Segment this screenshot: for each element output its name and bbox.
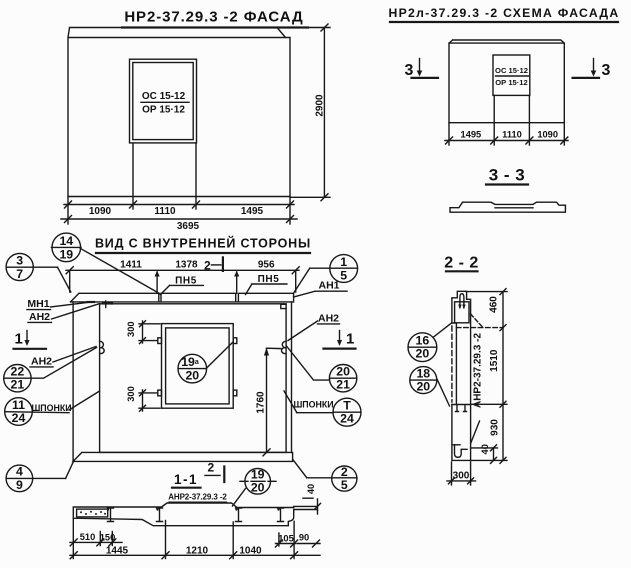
svg-text:АНР2-37.29.3 -2: АНР2-37.29.3 -2 xyxy=(473,333,484,408)
svg-text:11: 11 xyxy=(12,398,25,412)
svg-text:5: 5 xyxy=(341,478,348,492)
svg-text:20: 20 xyxy=(251,481,265,495)
svg-text:1110: 1110 xyxy=(154,206,176,217)
svg-text:1: 1 xyxy=(15,331,23,348)
svg-text:1110: 1110 xyxy=(502,130,522,140)
svg-text:2: 2 xyxy=(204,259,211,273)
svg-text:1040: 1040 xyxy=(239,545,262,556)
svg-text:3: 3 xyxy=(602,62,611,79)
svg-text:НР2-37.29.3 -2 ФАСАД: НР2-37.29.3 -2 ФАСАД xyxy=(124,9,303,26)
svg-text:1411: 1411 xyxy=(120,260,142,271)
svg-text:АН2: АН2 xyxy=(29,311,50,323)
svg-text:1210: 1210 xyxy=(186,545,209,556)
svg-text:1510: 1510 xyxy=(489,349,500,372)
svg-text:1090: 1090 xyxy=(89,206,112,217)
svg-text:ОР 15·12: ОР 15·12 xyxy=(142,105,185,116)
svg-text:ОС 15-12: ОС 15-12 xyxy=(142,91,186,102)
svg-text:АН2: АН2 xyxy=(318,313,339,325)
svg-text:460: 460 xyxy=(489,296,500,313)
svg-text:20: 20 xyxy=(185,369,199,383)
svg-text:АН1: АН1 xyxy=(318,280,339,292)
svg-text:АНР2-37.29.3 -2: АНР2-37.29.3 -2 xyxy=(168,493,227,502)
svg-text:2: 2 xyxy=(341,465,348,479)
svg-text:МН1: МН1 xyxy=(27,298,49,310)
svg-text:40: 40 xyxy=(480,444,490,454)
svg-text:510: 510 xyxy=(80,532,96,542)
svg-text:1378: 1378 xyxy=(175,260,198,271)
svg-text:АН2: АН2 xyxy=(31,356,52,368)
svg-text:24: 24 xyxy=(340,412,354,426)
svg-text:956: 956 xyxy=(258,260,275,271)
svg-text:4: 4 xyxy=(16,465,23,479)
svg-text:1: 1 xyxy=(340,255,347,269)
svg-text:1495: 1495 xyxy=(241,206,264,217)
svg-text:ВИД С ВНУТРЕННЕЙ СТОРОНЫ: ВИД С ВНУТРЕННЕЙ СТОРОНЫ xyxy=(95,236,311,251)
svg-text:14: 14 xyxy=(59,234,73,248)
svg-text:20: 20 xyxy=(416,380,430,394)
svg-text:21: 21 xyxy=(11,378,25,392)
svg-text:ШПОНКИ: ШПОНКИ xyxy=(31,403,71,413)
svg-text:20: 20 xyxy=(336,365,350,379)
svg-text:21: 21 xyxy=(336,378,350,392)
svg-text:3: 3 xyxy=(405,62,414,79)
svg-text:2900: 2900 xyxy=(315,94,326,117)
svg-text:3 - 3: 3 - 3 xyxy=(489,166,526,185)
svg-text:1: 1 xyxy=(346,331,354,348)
svg-text:20: 20 xyxy=(416,347,430,361)
svg-text:16: 16 xyxy=(416,334,430,348)
svg-text:150: 150 xyxy=(100,533,116,543)
svg-text:1090: 1090 xyxy=(537,130,558,140)
svg-text:1-1: 1-1 xyxy=(174,472,198,487)
svg-text:2 - 2: 2 - 2 xyxy=(444,255,479,272)
svg-text:1445: 1445 xyxy=(106,545,129,556)
svg-text:300: 300 xyxy=(126,321,136,337)
svg-text:300: 300 xyxy=(126,386,136,402)
svg-text:3: 3 xyxy=(16,253,23,267)
svg-text:105: 105 xyxy=(278,534,294,544)
svg-text:1495: 1495 xyxy=(461,130,482,140)
svg-text:Т: Т xyxy=(343,399,351,413)
svg-text:НР2л-37.29.3 -2 СХЕМА ФАСАДА: НР2л-37.29.3 -2 СХЕМА ФАСАДА xyxy=(389,6,620,20)
svg-text:90: 90 xyxy=(299,533,309,543)
svg-text:40: 40 xyxy=(306,484,316,494)
svg-text:24: 24 xyxy=(12,411,26,425)
svg-text:19: 19 xyxy=(59,247,73,261)
svg-text:2: 2 xyxy=(208,461,215,475)
svg-text:ОР 15·12: ОР 15·12 xyxy=(495,78,528,87)
svg-text:5: 5 xyxy=(340,268,347,282)
svg-text:1760: 1760 xyxy=(256,391,267,414)
svg-text:9: 9 xyxy=(16,478,23,492)
svg-text:ОС 15·12: ОС 15·12 xyxy=(495,66,528,75)
svg-text:18: 18 xyxy=(416,367,430,381)
svg-text:19: 19 xyxy=(251,468,265,482)
svg-text:22: 22 xyxy=(11,365,25,379)
svg-text:7: 7 xyxy=(16,267,23,281)
svg-text:3695: 3695 xyxy=(177,221,200,232)
svg-text:ПН5: ПН5 xyxy=(258,274,280,285)
svg-text:ПН5: ПН5 xyxy=(175,275,197,286)
svg-text:930: 930 xyxy=(490,419,501,436)
svg-text:300: 300 xyxy=(453,470,470,481)
svg-text:ШПОНКИ: ШПОНКИ xyxy=(293,400,333,410)
